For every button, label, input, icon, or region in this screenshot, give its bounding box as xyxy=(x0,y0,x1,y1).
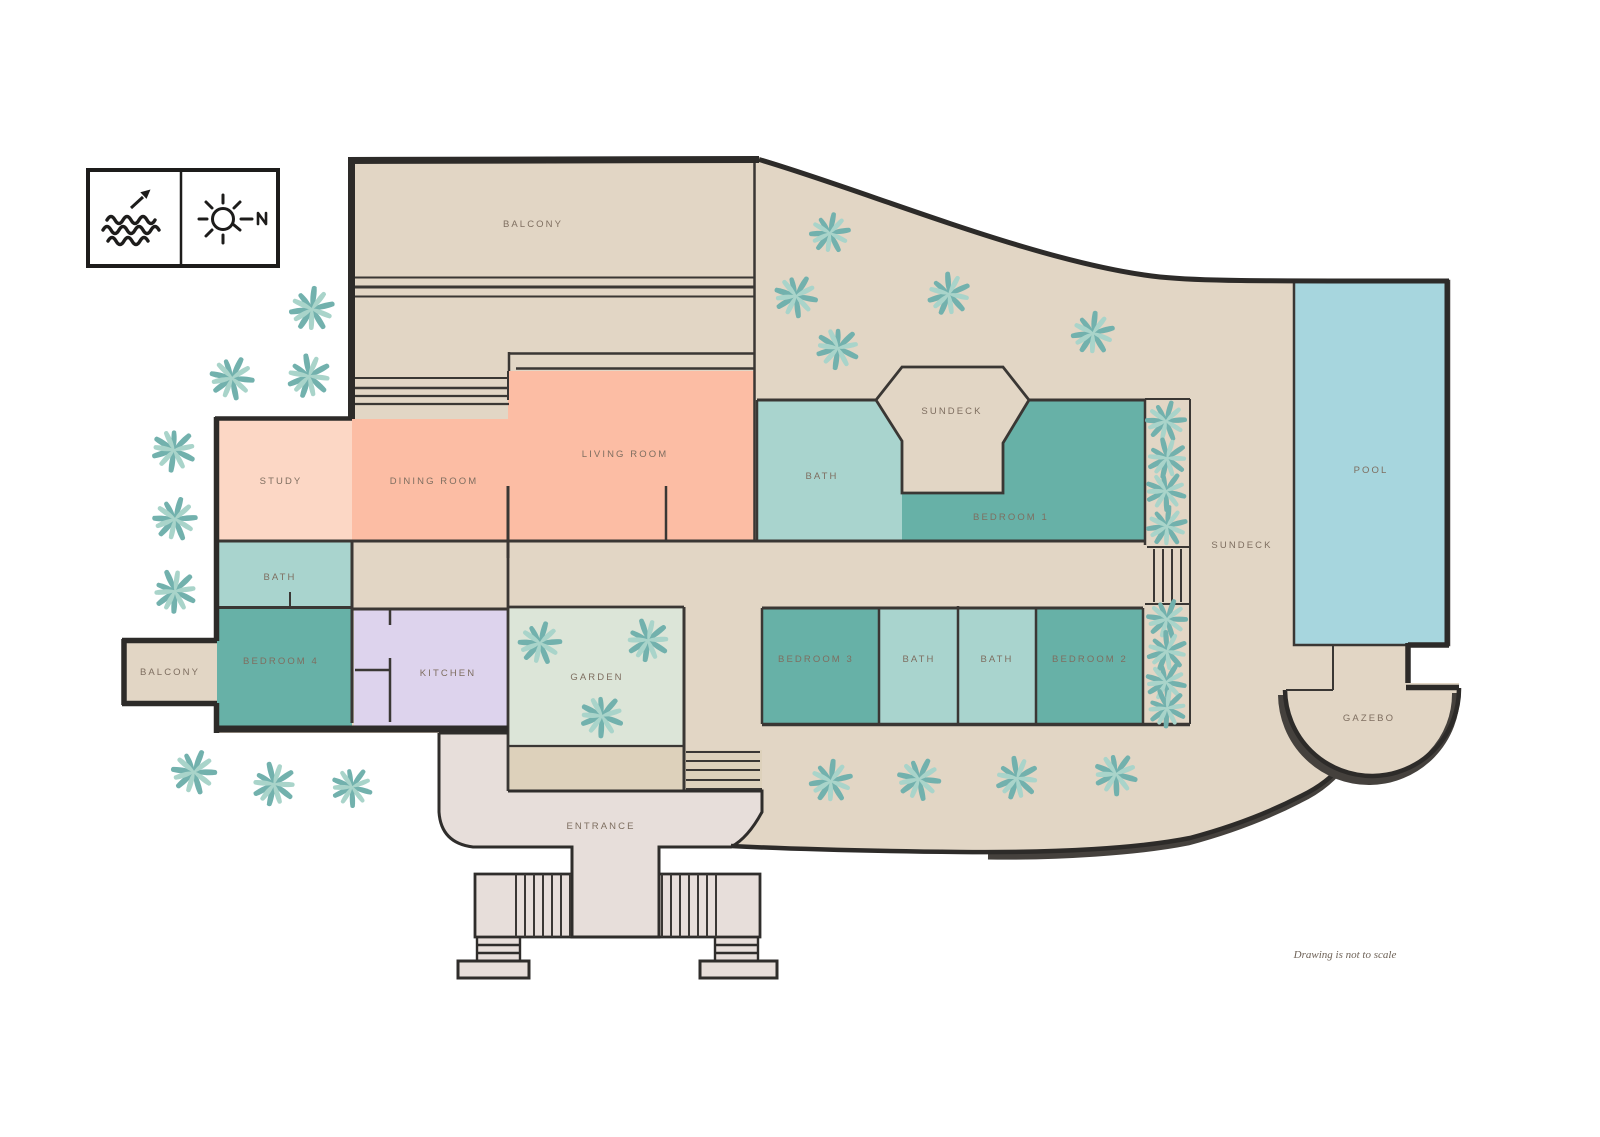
svg-text:ENTRANCE: ENTRANCE xyxy=(566,821,635,832)
svg-text:DINING ROOM: DINING ROOM xyxy=(390,476,479,487)
svg-text:BATH: BATH xyxy=(805,471,838,482)
svg-text:SUNDECK: SUNDECK xyxy=(921,406,982,417)
svg-text:SUNDECK: SUNDECK xyxy=(1211,540,1272,551)
svg-text:BEDROOM 4: BEDROOM 4 xyxy=(243,656,319,667)
svg-text:BATH: BATH xyxy=(902,654,935,665)
svg-text:GARDEN: GARDEN xyxy=(570,672,623,683)
svg-text:KITCHEN: KITCHEN xyxy=(420,668,476,679)
svg-text:LIVING ROOM: LIVING ROOM xyxy=(582,449,668,460)
svg-text:GAZEBO: GAZEBO xyxy=(1343,713,1395,724)
svg-text:STUDY: STUDY xyxy=(260,476,303,487)
svg-text:Drawing is not to scale: Drawing is not to scale xyxy=(1293,949,1397,961)
svg-text:BEDROOM 3: BEDROOM 3 xyxy=(778,654,854,665)
svg-text:BEDROOM 2: BEDROOM 2 xyxy=(1052,654,1128,665)
svg-text:BATH: BATH xyxy=(980,654,1013,665)
svg-text:BEDROOM 1: BEDROOM 1 xyxy=(973,512,1049,523)
svg-text:POOL: POOL xyxy=(1354,465,1389,476)
svg-text:BALCONY: BALCONY xyxy=(140,667,200,678)
svg-text:BALCONY: BALCONY xyxy=(503,219,563,230)
svg-text:BATH: BATH xyxy=(263,572,296,583)
